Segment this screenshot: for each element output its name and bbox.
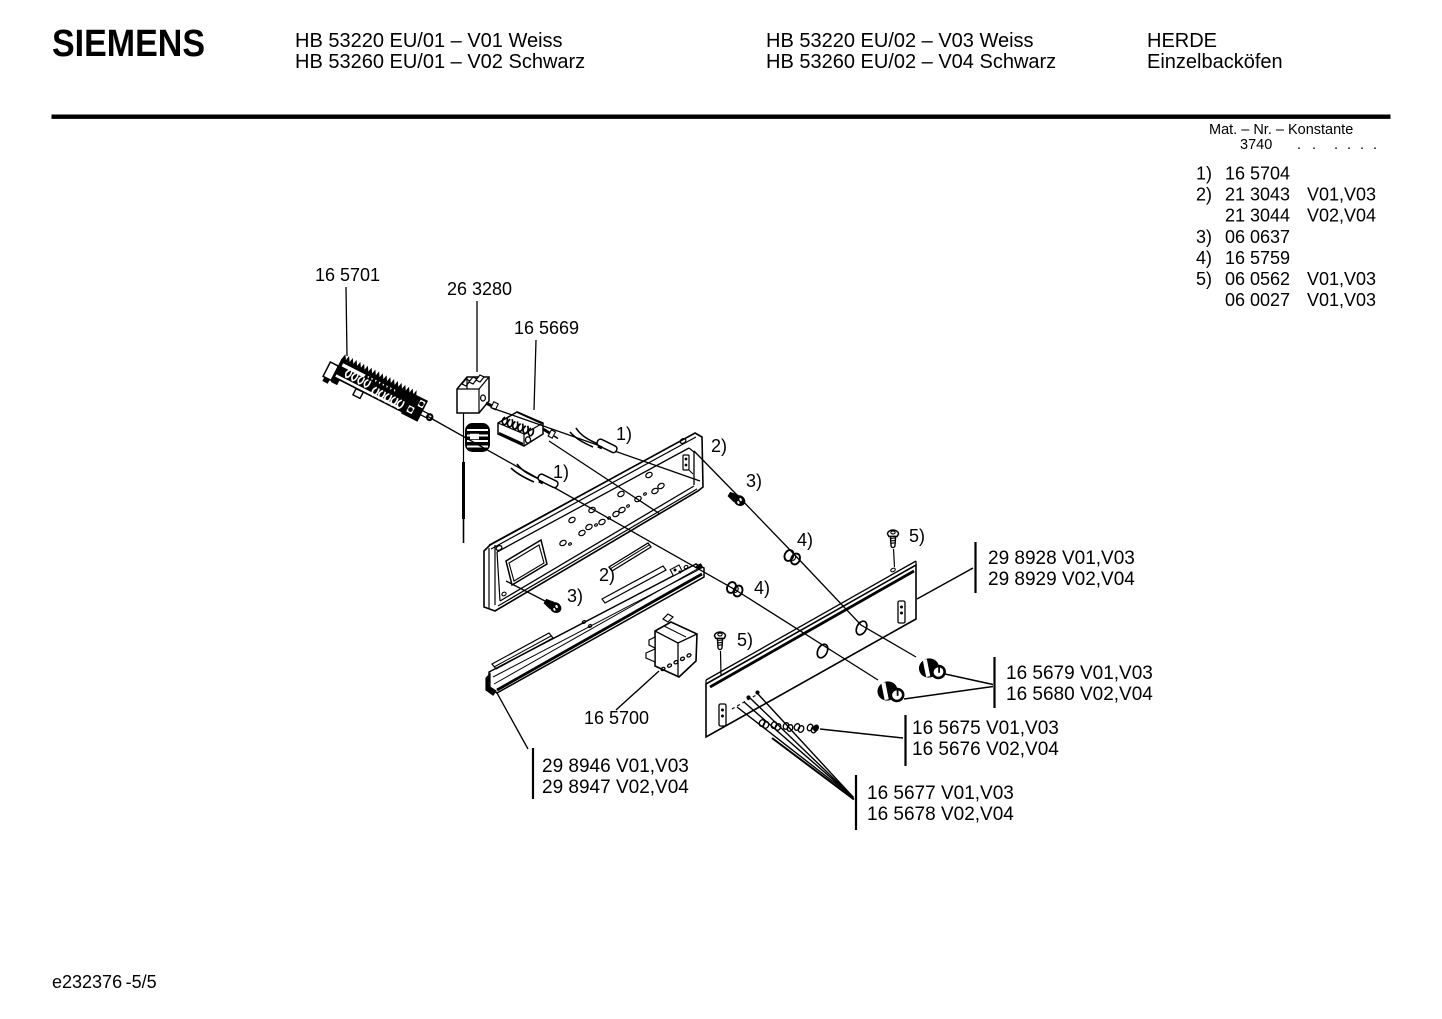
svg-text:16 5675 V01,V03: 16 5675 V01,V03 xyxy=(912,718,1059,739)
svg-text:3740......: 3740...... xyxy=(1240,137,1377,153)
svg-text:16 5678 V02,V04: 16 5678 V02,V04 xyxy=(867,804,1014,825)
svg-text:3): 3) xyxy=(746,471,762,491)
svg-text:HB 53220 EU/01 – V01 Weiss: HB 53220 EU/01 – V01 Weiss xyxy=(295,30,563,52)
svg-text:3): 3) xyxy=(567,586,583,606)
svg-text:4): 4) xyxy=(797,530,813,550)
svg-text:HB 53220 EU/02 – V03 Weiss: HB 53220 EU/02 – V03 Weiss xyxy=(766,30,1034,52)
svg-text:1): 1) xyxy=(616,424,632,444)
svg-text:e232376 -5/5: e232376 -5/5 xyxy=(52,972,157,992)
svg-text:1): 1) xyxy=(553,462,569,482)
svg-text:16 5701: 16 5701 xyxy=(315,265,380,285)
svg-text:21 3043: 21 3043 xyxy=(1225,185,1290,205)
svg-text:29 8928 V01,V03: 29 8928 V01,V03 xyxy=(988,548,1135,569)
svg-text:29 8929 V02,V04: 29 8929 V02,V04 xyxy=(988,569,1135,590)
svg-text:06 0637: 06 0637 xyxy=(1225,227,1290,247)
svg-text:16 5704: 16 5704 xyxy=(1225,164,1290,184)
svg-text:V01,V03: V01,V03 xyxy=(1307,185,1376,205)
svg-text:5): 5) xyxy=(737,630,753,650)
svg-text:29 8946 V01,V03: 29 8946 V01,V03 xyxy=(542,756,689,777)
svg-text:2): 2) xyxy=(1196,185,1212,205)
svg-text:29 8947 V02,V04: 29 8947 V02,V04 xyxy=(542,777,689,798)
svg-text:5): 5) xyxy=(909,526,925,546)
svg-text:06 0027: 06 0027 xyxy=(1225,290,1290,310)
svg-text:2): 2) xyxy=(599,565,615,585)
svg-text:4): 4) xyxy=(754,578,770,598)
svg-text:21 3044: 21 3044 xyxy=(1225,206,1290,226)
svg-text:16 5700: 16 5700 xyxy=(584,708,649,728)
svg-text:16 5676 V02,V04: 16 5676 V02,V04 xyxy=(912,739,1059,760)
svg-text:HB 53260 EU/01 – V02 Schwarz: HB 53260 EU/01 – V02 Schwarz xyxy=(295,51,585,73)
svg-text:16 5669: 16 5669 xyxy=(514,318,579,338)
svg-text:16 5679 V01,V03: 16 5679 V01,V03 xyxy=(1006,663,1153,684)
svg-text:SIEMENS: SIEMENS xyxy=(52,23,205,65)
svg-text:HB 53260 EU/02 – V04 Schwarz: HB 53260 EU/02 – V04 Schwarz xyxy=(766,51,1056,73)
svg-text:3): 3) xyxy=(1196,227,1212,247)
svg-text:26 3280: 26 3280 xyxy=(447,279,512,299)
svg-text:V02,V04: V02,V04 xyxy=(1307,206,1376,226)
svg-text:2): 2) xyxy=(711,436,727,456)
svg-text:16 5680 V02,V04: 16 5680 V02,V04 xyxy=(1006,684,1153,705)
svg-text:16 5759: 16 5759 xyxy=(1225,248,1290,268)
svg-text:Einzelbacköfen: Einzelbacköfen xyxy=(1147,51,1283,73)
svg-text:5): 5) xyxy=(1196,269,1212,289)
svg-text:V01,V03: V01,V03 xyxy=(1307,269,1376,289)
svg-text:1): 1) xyxy=(1196,164,1212,184)
svg-text:06 0562: 06 0562 xyxy=(1225,269,1290,289)
svg-text:HERDE: HERDE xyxy=(1147,30,1217,52)
svg-text:16 5677 V01,V03: 16 5677 V01,V03 xyxy=(867,783,1014,804)
svg-text:4): 4) xyxy=(1196,248,1212,268)
svg-text:Mat. – Nr. – Konstante: Mat. – Nr. – Konstante xyxy=(1209,122,1353,138)
svg-text:V01,V03: V01,V03 xyxy=(1307,290,1376,310)
